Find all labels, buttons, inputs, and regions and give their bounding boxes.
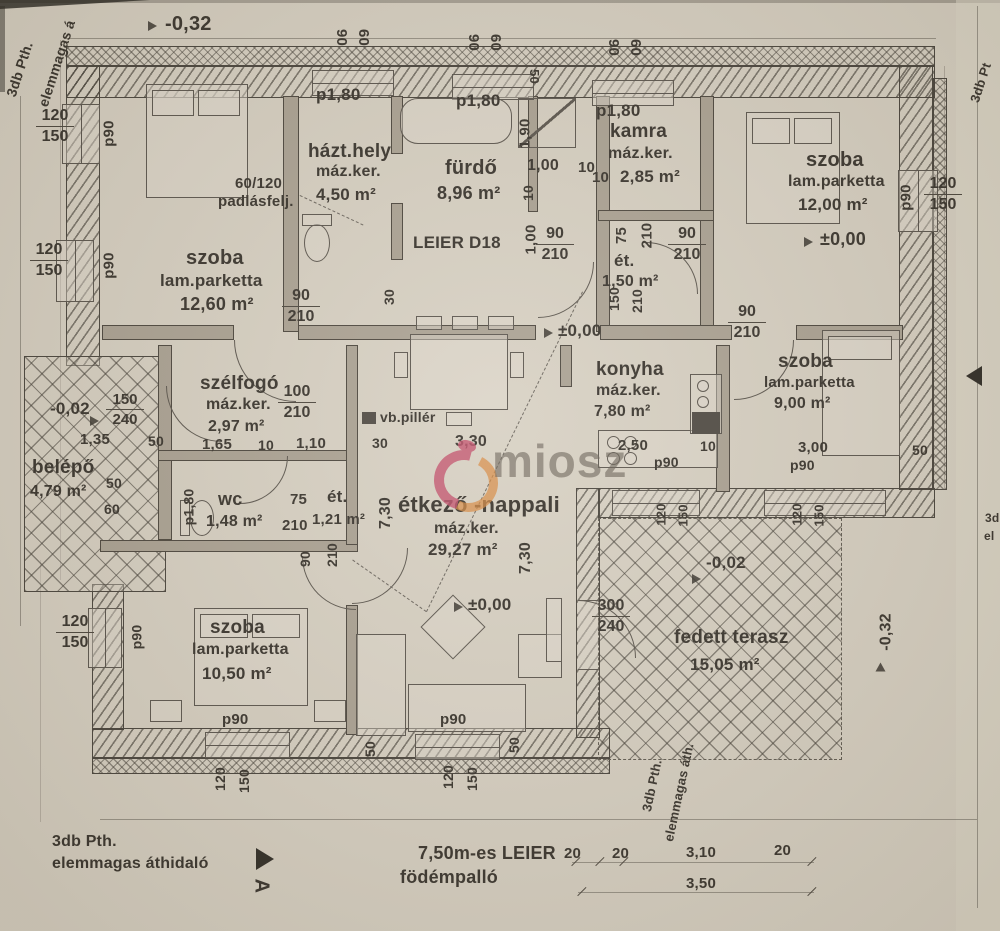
dim-pair: 150 240 <box>106 392 144 427</box>
level-label: ±0,00 <box>468 596 511 613</box>
toilet-icon <box>304 224 330 262</box>
room-name: szélfogó <box>200 374 279 393</box>
dim-label: 1,00 <box>527 158 559 174</box>
room-area: 2,97 m² <box>208 419 265 435</box>
slab-note: 7,50m-es LEIER <box>418 844 556 862</box>
dim-label: 10 <box>592 170 609 185</box>
room-floor: lam.parketta <box>192 642 289 658</box>
dim-label: 300 <box>598 598 625 614</box>
dim-label: 50 <box>148 434 164 448</box>
boundary-line <box>977 6 978 908</box>
wall-interior <box>560 345 572 387</box>
sink-bowl-icon <box>697 380 709 392</box>
lintel-note: 3db Pth. <box>4 40 35 98</box>
lintel-note: 3db Pth. <box>52 834 117 850</box>
dim-label: 210 <box>734 325 761 341</box>
room-floor: lam.parketta <box>764 375 855 390</box>
dim-label: 50 <box>912 443 928 457</box>
scan-light-right <box>956 0 1000 931</box>
dim-label: p90 <box>129 625 143 650</box>
dim-label: 30 <box>382 289 396 305</box>
column-icon <box>362 412 376 424</box>
room-name: szoba <box>210 618 265 637</box>
lintel-note: elemmagas áthidaló <box>52 856 209 872</box>
dim-label: p90 <box>440 712 466 727</box>
dim-label: 50 <box>363 741 377 757</box>
dim-label: 1,90 <box>518 119 533 149</box>
slab-note: födémpalló <box>400 868 498 886</box>
dim-label: 20 <box>774 843 791 858</box>
dim-label: p90 <box>102 252 117 278</box>
level-label: ±0,00 <box>558 322 601 339</box>
dim-label: p1,80 <box>181 489 195 526</box>
room-floor: máz.ker. <box>316 164 381 180</box>
dim-label: 150 <box>42 129 69 145</box>
dim-label: 90 <box>292 288 310 304</box>
room-name: szoba <box>806 150 864 170</box>
dim-label: 90 <box>334 29 349 46</box>
dim-label: 120 <box>791 503 804 525</box>
level-marker-icon <box>804 237 813 247</box>
room-area: 1,48 m² <box>206 514 263 530</box>
dim-label: 210 <box>284 405 311 421</box>
door-height-label: p1,80 <box>456 92 500 109</box>
scan-edge-corner <box>0 0 150 9</box>
dim-label: 1,65 <box>202 437 232 452</box>
level-marker-icon <box>90 416 99 426</box>
lintel-note: el <box>984 530 994 542</box>
dim-label: 150 <box>465 767 479 791</box>
dim-label: 60 <box>488 34 503 51</box>
dim-label: 90 <box>606 39 621 56</box>
level-label: -0,02 <box>706 554 746 571</box>
wall-interior <box>102 325 234 340</box>
dim-pair: 90 210 <box>536 226 574 263</box>
chair-icon <box>394 352 408 378</box>
level-marker-icon <box>148 21 157 31</box>
nightstand-icon <box>314 700 346 722</box>
dim-label: 210 <box>282 518 308 533</box>
dim-label: p90 <box>222 712 248 727</box>
dim-pair: 120 150 <box>36 108 74 145</box>
dim-label: 120 <box>655 503 668 525</box>
level-marker-icon <box>544 328 553 338</box>
dim-label: 210 <box>542 247 569 263</box>
dim-label: 75 <box>290 492 307 507</box>
chair-icon <box>452 316 478 330</box>
pillow-icon <box>152 90 194 116</box>
door-arc <box>352 548 408 604</box>
dim-label: 3,50 <box>686 876 716 891</box>
scan-edge-left <box>0 6 5 92</box>
wall-exterior-right-insulation <box>933 78 947 490</box>
lintel-note: 3db Pth. <box>640 758 664 812</box>
room-floor: lam.parketta <box>788 174 885 190</box>
dim-label: 120 <box>42 108 69 124</box>
room-name: ét. <box>327 488 347 505</box>
dim-line <box>578 892 814 893</box>
dim-label: 240 <box>598 619 625 635</box>
dim-label: 120 <box>62 614 89 630</box>
level-marker-icon <box>692 574 701 584</box>
section-marker-icon <box>966 366 982 386</box>
door-arc <box>538 262 594 318</box>
dim-label: 120 <box>213 767 227 791</box>
dim-label: 50 <box>528 69 541 84</box>
room-name: szoba <box>186 248 244 268</box>
room-area: 8,96 m² <box>437 184 500 202</box>
dim-label: 210 <box>674 247 701 263</box>
section-marker-icon <box>256 848 274 870</box>
chair-icon <box>446 412 472 426</box>
sofa-icon <box>408 684 526 732</box>
room-name: kamra <box>610 122 667 141</box>
dim-label: 60 <box>104 502 120 516</box>
dim-label: 150 <box>677 504 690 526</box>
toilet-tank-icon <box>302 214 332 226</box>
level-marker-icon <box>876 663 886 672</box>
room-floor: máz.ker. <box>596 383 661 399</box>
dim-label: 30 <box>372 436 388 450</box>
level-label: ±0,00 <box>820 230 866 248</box>
room-name: szoba <box>778 352 833 371</box>
room-floor: máz.ker. <box>206 397 271 413</box>
dim-label: 150 <box>607 287 621 311</box>
pillow-icon <box>794 118 832 144</box>
attic-access-label: 60/120 <box>235 176 282 191</box>
boundary-line <box>100 819 977 820</box>
room-name: belépő <box>32 458 94 477</box>
room-area: 15,05 m² <box>690 656 760 673</box>
dim-label: 1,35 <box>80 432 110 447</box>
dim-pair: 90 210 <box>668 226 706 263</box>
lintel-note: 3db Pt <box>968 61 993 104</box>
dim-label: 50 <box>106 476 122 490</box>
level-label: -0,32 <box>879 613 895 650</box>
wall-interior <box>600 325 732 340</box>
dim-label: 90 <box>738 304 756 320</box>
dim-label: 150 <box>813 504 826 526</box>
wall-exterior-right <box>899 66 933 490</box>
room-area: 9,00 m² <box>774 396 831 412</box>
dim-label: 60 <box>356 29 371 46</box>
dim-label: 7,30 <box>518 542 534 574</box>
pillow-icon <box>198 90 240 116</box>
watermark-text: miosz <box>492 438 627 484</box>
room-name: wc <box>218 490 242 508</box>
dim-pair: 120 150 <box>30 242 68 279</box>
room-area: 1,21 m² <box>312 512 365 527</box>
dim-label: 150 <box>62 635 89 651</box>
dim-label: 210 <box>630 289 644 313</box>
column-label: vb.pillér <box>380 410 435 424</box>
dim-label: 10 <box>521 185 535 201</box>
watermark-logo-icon <box>428 440 486 498</box>
room-name: ét. <box>614 252 634 269</box>
dim-label: 150 <box>237 769 251 793</box>
dim-label: 10 <box>258 438 274 452</box>
dim-label: 50 <box>507 737 521 753</box>
pillow-icon <box>752 118 790 144</box>
dim-label: 120 <box>36 242 63 258</box>
chair-icon <box>510 352 524 378</box>
lintel-note: 3d <box>985 512 999 524</box>
dim-pair: 90 210 <box>282 288 320 325</box>
level-marker-icon <box>454 602 463 612</box>
dim-label: 210 <box>639 223 654 249</box>
section-letter: A <box>251 879 271 894</box>
dim-label: p90 <box>654 455 679 469</box>
room-area: 12,00 m² <box>798 196 868 213</box>
boundary-line <box>20 96 21 626</box>
wall-interior <box>598 210 714 221</box>
room-area: 4,50 m² <box>316 186 376 203</box>
dim-pair: 120 150 <box>924 176 962 213</box>
chair-icon <box>488 316 514 330</box>
sofa-icon <box>356 634 406 736</box>
room-area: 12,60 m² <box>180 295 254 313</box>
room-floor: lam.parketta <box>160 272 263 289</box>
boundary-line <box>40 560 41 822</box>
pillow-icon <box>828 336 892 360</box>
room-floor: máz.ker. <box>608 146 673 162</box>
room-area: 7,80 m² <box>594 404 651 420</box>
window <box>415 734 500 760</box>
room-area: 4,79 m² <box>30 484 87 500</box>
wall-exterior-bottom-insulation <box>92 758 610 774</box>
dim-label: 210 <box>288 309 315 325</box>
dim-label: 100 <box>284 384 311 400</box>
sink-bowl-icon <box>697 396 709 408</box>
dim-label: 3,00 <box>798 440 828 455</box>
floor-plan-scan: -0,32 90 60 90 60 90 60 50 p1,80 p1,80 p… <box>0 0 1000 931</box>
dim-label: 90 <box>298 551 312 567</box>
dim-label: 150 <box>930 197 957 213</box>
room-name: fedett terasz <box>674 628 789 647</box>
dim-label: 10 <box>700 439 716 453</box>
dim-label: 150 <box>112 392 137 407</box>
room-area: 29,27 m² <box>428 541 498 558</box>
room-floor: máz.ker. <box>434 521 499 537</box>
dim-line <box>572 862 814 863</box>
dim-label: 90 <box>678 226 696 242</box>
window <box>205 732 290 758</box>
wall-interior <box>100 540 358 552</box>
tv-cabinet-icon <box>546 598 562 662</box>
dim-label: p90 <box>102 120 117 146</box>
room-name: konyha <box>596 360 664 379</box>
scan-edge-top <box>0 0 1000 3</box>
dim-label: 150 <box>36 263 63 279</box>
dim-label: 120 <box>930 176 957 192</box>
dim-label: p90 <box>899 184 914 210</box>
nightstand-icon <box>150 700 182 722</box>
attic-access-label: padlásfelj. <box>218 194 294 209</box>
room-name: házt.hely <box>308 142 391 161</box>
dim-pair: 100 210 <box>278 384 316 421</box>
dim-label: 90 <box>466 34 481 51</box>
dim-label: 120 <box>441 765 455 789</box>
dim-pair: 120 150 <box>56 614 94 651</box>
door-height-label: p1,80 <box>316 86 360 103</box>
door-height-label: p1,80 <box>596 102 640 119</box>
fridge-icon <box>692 412 720 434</box>
dim-label: p90 <box>790 458 815 472</box>
dim-label: 60 <box>628 39 643 56</box>
dim-label: 210 <box>325 543 339 567</box>
door-arc <box>240 456 288 504</box>
wall-interior <box>391 203 403 260</box>
room-name: fürdő <box>445 158 497 178</box>
slab-note: LEIER D18 <box>413 234 501 251</box>
room-area: 10,50 m² <box>202 665 272 682</box>
dim-label: 90 <box>546 226 564 242</box>
dining-table-icon <box>410 334 508 410</box>
dim-label: 1,10 <box>296 436 326 451</box>
dim-label: 75 <box>614 227 629 244</box>
dim-label: 240 <box>112 412 137 427</box>
dim-pair: 300 240 <box>592 598 630 635</box>
dim-pair: 90 210 <box>728 304 766 341</box>
chair-icon <box>416 316 442 330</box>
dim-label: 7,30 <box>378 497 394 529</box>
level-label: -0,32 <box>165 14 212 34</box>
level-label: -0,02 <box>50 400 90 417</box>
dim-label: 3,10 <box>686 845 716 860</box>
room-area: 2,85 m² <box>620 168 680 185</box>
